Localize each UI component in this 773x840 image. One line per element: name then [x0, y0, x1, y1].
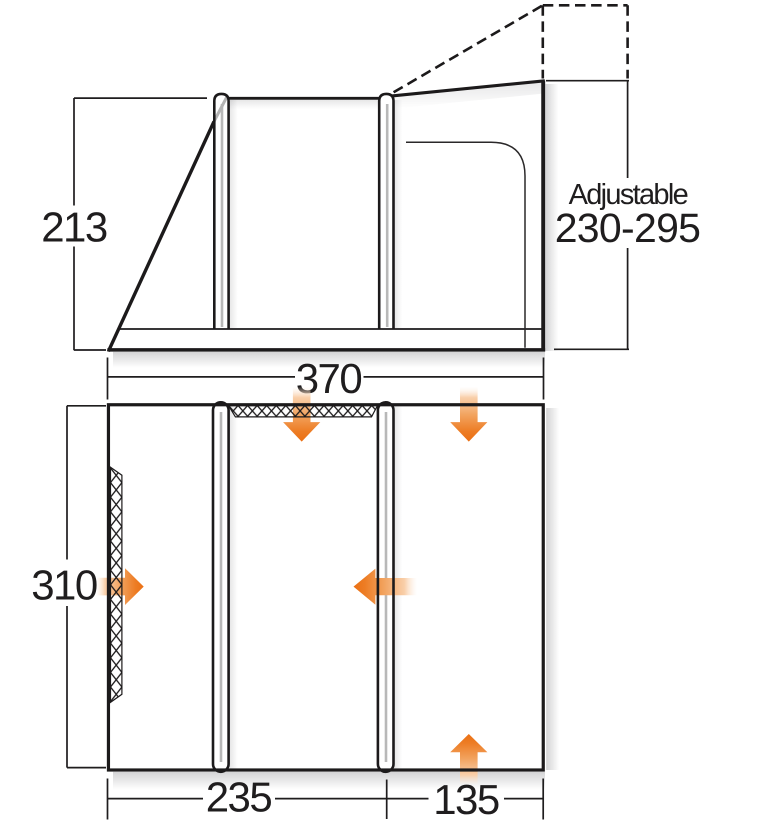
svg-text:310: 310	[31, 562, 97, 609]
svg-text:213: 213	[41, 203, 107, 250]
svg-text:135: 135	[433, 776, 499, 823]
svg-text:235: 235	[206, 774, 272, 821]
svg-text:230-295: 230-295	[555, 205, 701, 251]
